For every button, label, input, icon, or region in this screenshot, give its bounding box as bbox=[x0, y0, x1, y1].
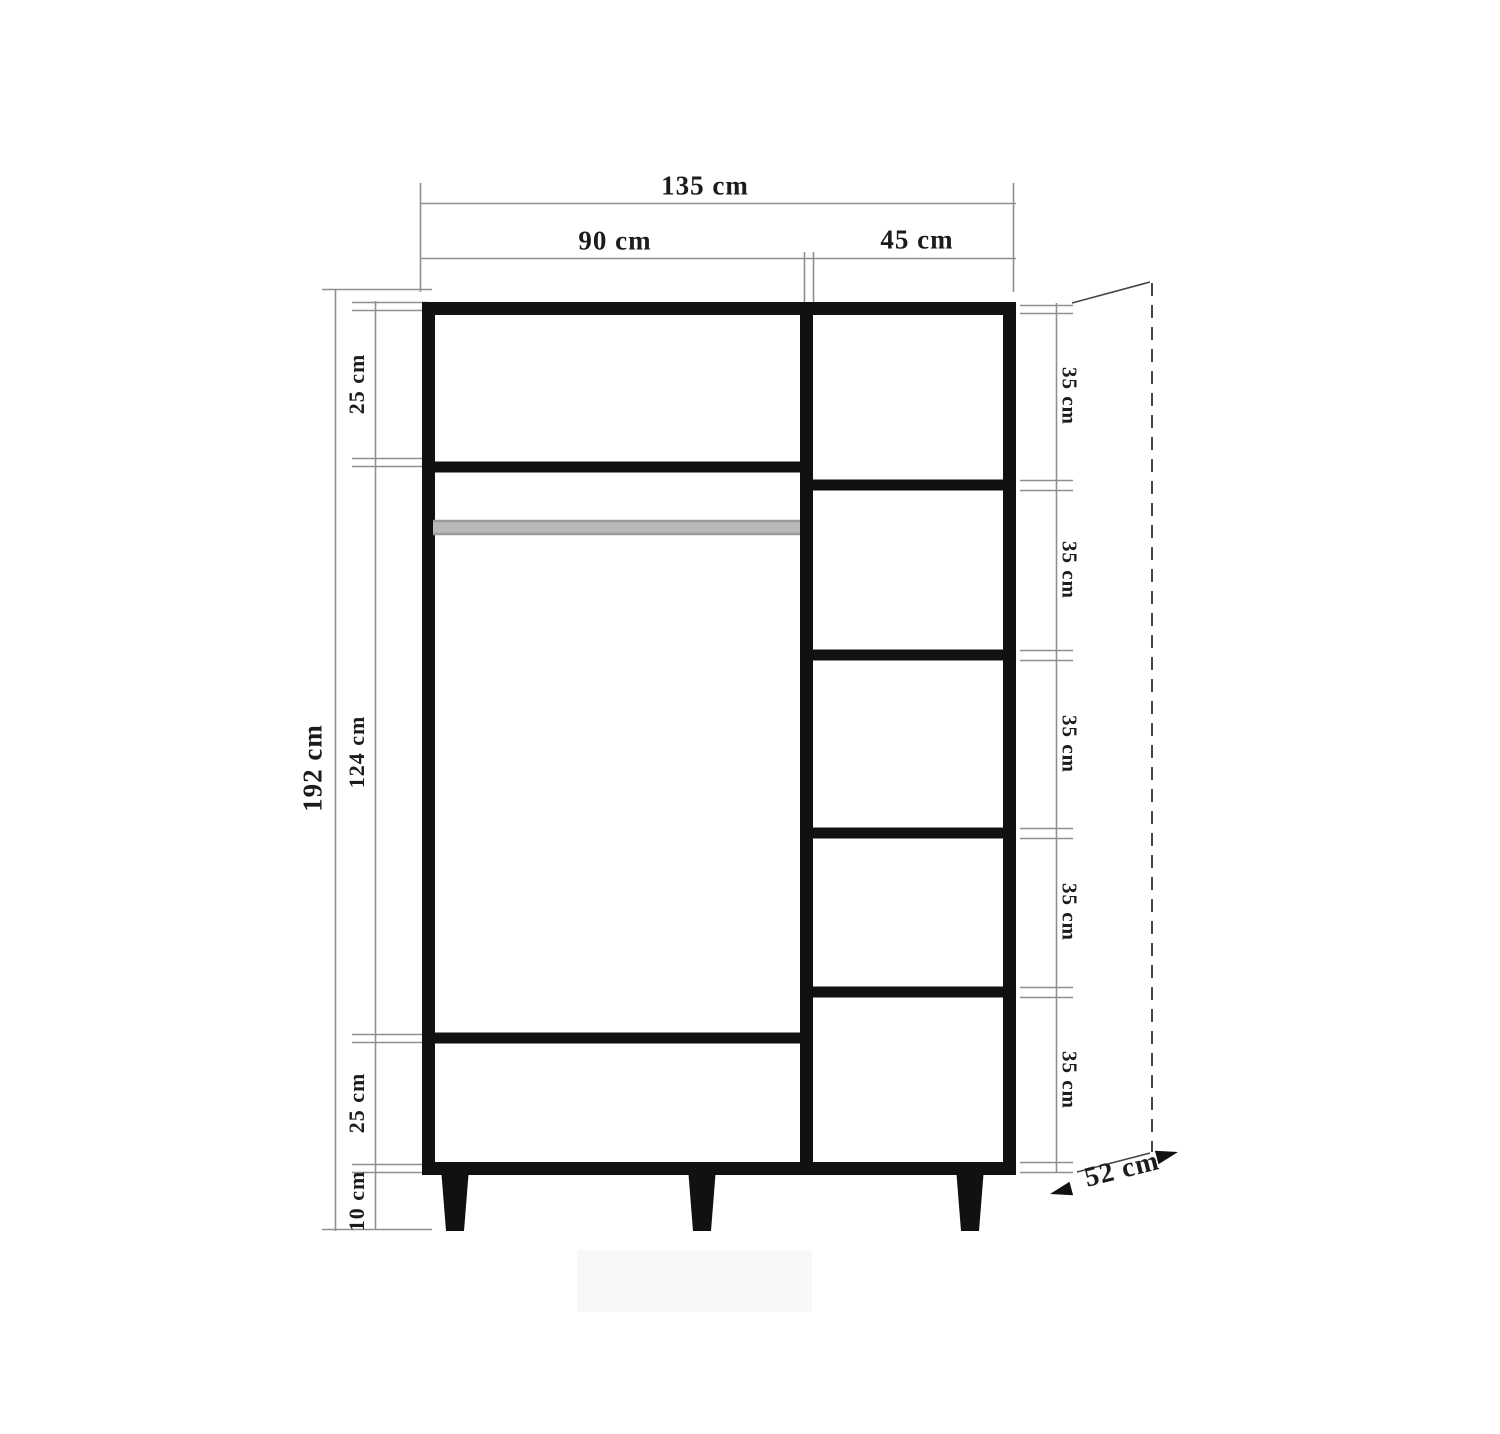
depth-arrow-left bbox=[1050, 1182, 1073, 1196]
bottom-compartment-height-label: 25 cm bbox=[346, 1073, 368, 1134]
total-width-label: 135 cm bbox=[661, 173, 749, 200]
total-height-label: 192 cm bbox=[300, 724, 327, 812]
diagram-linework bbox=[0, 0, 1500, 1434]
depth-top-diagonal bbox=[1072, 282, 1150, 303]
floor-shadow bbox=[577, 1250, 812, 1312]
wardrobe-dimension-diagram: 135 cm 90 cm 45 cm 192 cm 25 cm 124 cm 2… bbox=[0, 0, 1500, 1434]
leg-left bbox=[441, 1168, 469, 1231]
shelf-height-label-3: 35 cm bbox=[1059, 715, 1080, 773]
shelf-height-label-4: 35 cm bbox=[1059, 883, 1080, 941]
leg-height-label: 10 cm bbox=[346, 1171, 368, 1232]
left-section-width-label: 90 cm bbox=[578, 228, 651, 255]
leg-center bbox=[688, 1168, 716, 1231]
shelf-height-label-5: 35 cm bbox=[1059, 1051, 1080, 1109]
top-compartment-height-label: 25 cm bbox=[346, 354, 368, 415]
wardrobe-structure bbox=[429, 303, 1010, 1169]
shelf-height-label-1: 35 cm bbox=[1059, 367, 1080, 425]
shelf-height-label-2: 35 cm bbox=[1059, 541, 1080, 599]
hanging-section-height-label: 124 cm bbox=[346, 716, 368, 789]
right-section-width-label: 45 cm bbox=[880, 227, 953, 254]
hanging-rod bbox=[433, 521, 800, 534]
leg-right bbox=[956, 1168, 984, 1231]
depth-projection bbox=[1072, 282, 1152, 1172]
wardrobe-legs bbox=[441, 1168, 984, 1231]
